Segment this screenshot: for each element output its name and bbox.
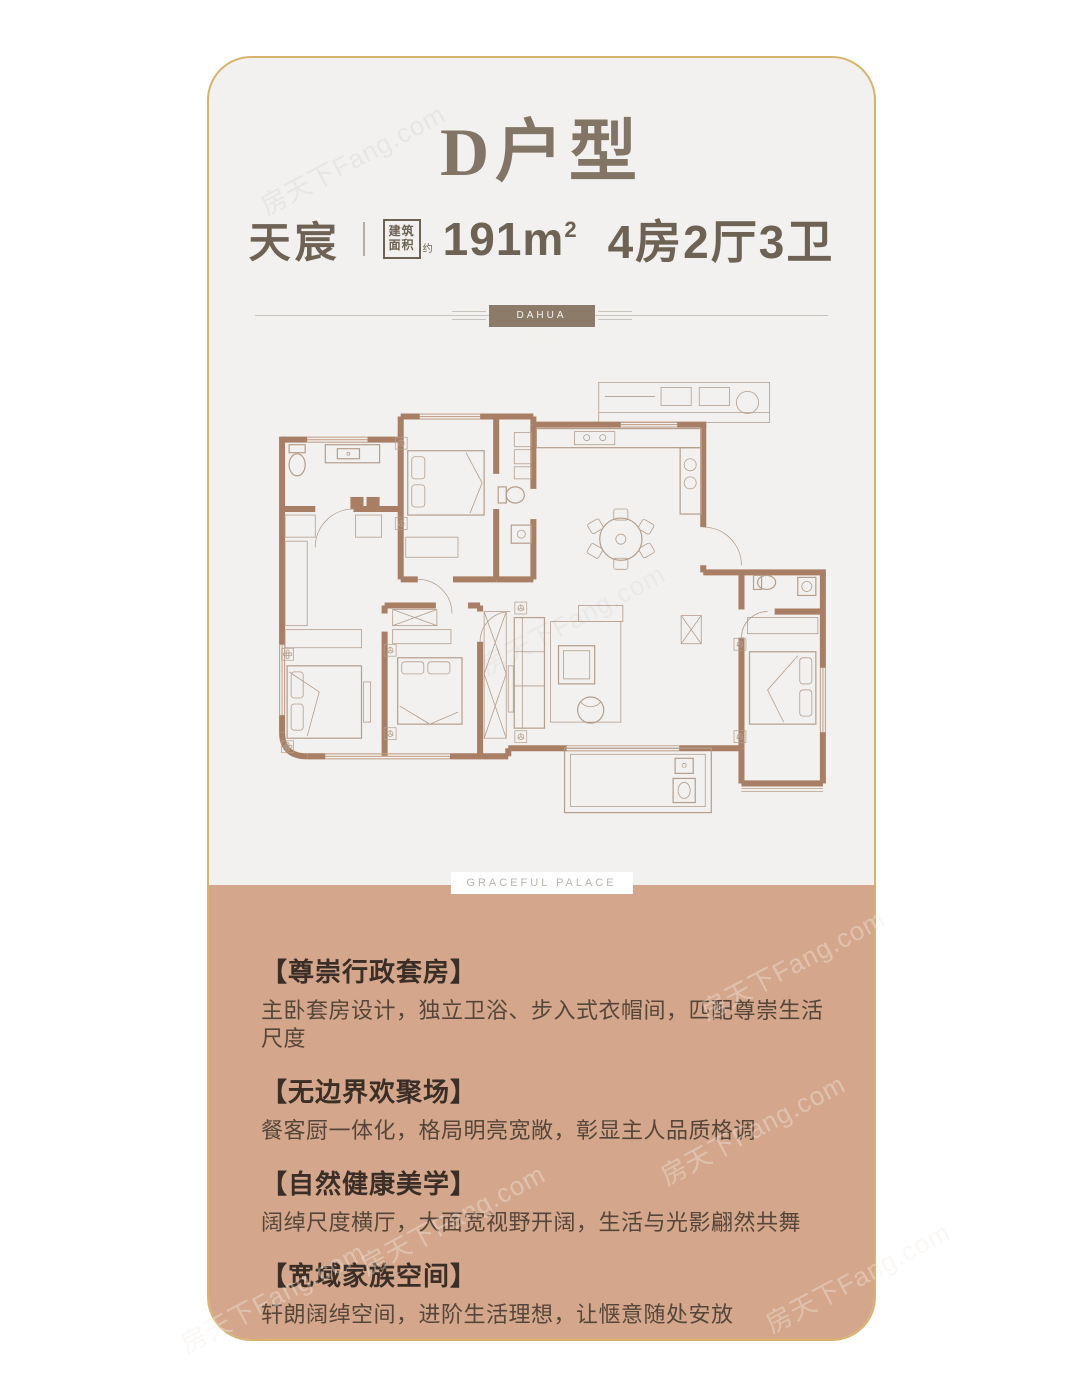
room-count: 4房2厅3卫 bbox=[608, 206, 835, 272]
master-bed-icon bbox=[282, 648, 371, 752]
walls bbox=[282, 417, 826, 784]
feature-block: 【宽域家族空间】 轩朗阔绰空间，进阶生活理想，让惬意随处安放 bbox=[261, 1259, 838, 1329]
door-arcs bbox=[315, 509, 767, 642]
bathroom-toilet-icon bbox=[289, 445, 379, 476]
unit-subtitle: 天宸 建筑 面积 约 191m2 4房2厅3卫 bbox=[209, 206, 874, 272]
feature-body: 阔绰尺度横厅，大面宽视野开阔，生活与光影翩然共舞 bbox=[261, 1209, 838, 1237]
feature-block: 【无边界欢聚场】 餐客厨一体化，格局明亮宽敞，彰显主人品质格调 bbox=[261, 1075, 838, 1145]
feature-body: 主卧套房设计，独立卫浴、步入式衣帽间，匹配尊崇生活尺度 bbox=[261, 997, 838, 1053]
dining-table-icon bbox=[586, 509, 655, 569]
suite-bathroom-icons bbox=[754, 575, 816, 595]
area-label-top: 建筑 bbox=[389, 225, 415, 239]
feature-block: 【尊崇行政套房】 主卧套房设计，独立卫浴、步入式衣帽间，匹配尊崇生活尺度 bbox=[261, 955, 838, 1053]
sliding-wardrobe-icon bbox=[484, 612, 513, 739]
equipment-platform bbox=[599, 382, 770, 422]
area-label-bottom: 面积 bbox=[389, 239, 415, 253]
area-superscript: 2 bbox=[564, 217, 577, 242]
feature-block: 【自然健康美学】 阔绰尺度横厅，大面宽视野开阔，生活与光影翩然共舞 bbox=[261, 1167, 838, 1237]
kitchen-counter-icons bbox=[536, 429, 701, 514]
feature-heading: 【无边界欢聚场】 bbox=[261, 1075, 838, 1109]
sofa-icon bbox=[514, 602, 623, 743]
page: D户型 天宸 建筑 面积 约 191m2 4房2厅3卫 DAHUA GROUP bbox=[0, 0, 1086, 1400]
features-section: 【尊崇行政套房】 主卧套房设计，独立卫浴、步入式衣帽间，匹配尊崇生活尺度 【无边… bbox=[209, 885, 874, 1339]
area-label-box: 建筑 面积 bbox=[383, 219, 421, 259]
area-value: 191m2 bbox=[443, 212, 578, 266]
area-label: 建筑 面积 约 bbox=[383, 219, 433, 259]
bedroom-top-bed-icon bbox=[395, 437, 484, 557]
feature-heading: 【尊崇行政套房】 bbox=[261, 955, 838, 989]
floor-plan bbox=[267, 378, 845, 826]
foyer-cabinet-icon bbox=[681, 616, 701, 644]
subtitle-divider-bar bbox=[363, 222, 365, 256]
feature-body: 轩朗阔绰空间，进阶生活理想，让惬意随处安放 bbox=[261, 1301, 838, 1329]
bedroom-middle-bed-icon bbox=[384, 610, 462, 740]
feature-body: 餐客厨一体化，格局明亮宽敞，彰显主人品质格调 bbox=[261, 1117, 838, 1145]
divider-stripe-right bbox=[598, 311, 632, 320]
bathroom-middle-icons bbox=[498, 433, 531, 544]
feature-heading: 【自然健康美学】 bbox=[261, 1167, 838, 1201]
brand-divider: DAHUA GROUP bbox=[255, 304, 828, 328]
floorplan-card: D户型 天宸 建筑 面积 约 191m2 4房2厅3卫 DAHUA GROUP bbox=[207, 56, 876, 1341]
area-approx: 约 bbox=[423, 240, 433, 259]
unit-title: D户型 bbox=[209, 96, 874, 195]
project-name: 天宸 bbox=[249, 209, 341, 270]
plan-caption: GRACEFUL PALACE bbox=[450, 872, 632, 894]
suite-bed-icon bbox=[734, 618, 818, 743]
divider-stripe-left bbox=[452, 311, 486, 320]
feature-heading: 【宽域家族空间】 bbox=[261, 1259, 838, 1293]
brand-badge: DAHUA GROUP bbox=[489, 305, 595, 327]
wardrobe-hatch bbox=[285, 515, 382, 648]
